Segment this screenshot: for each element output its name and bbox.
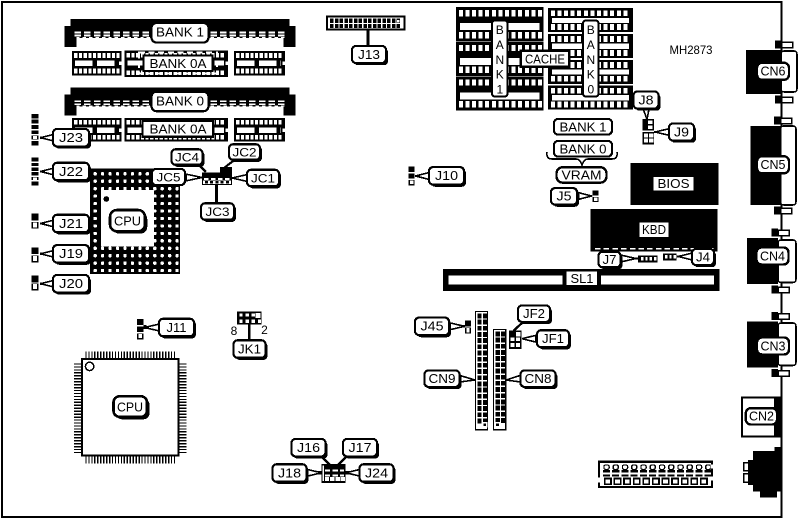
svg-text:N: N <box>586 53 595 67</box>
svg-text:JC5: JC5 <box>157 170 181 184</box>
svg-text:VRAM: VRAM <box>562 169 602 183</box>
svg-text:J23: J23 <box>59 131 83 145</box>
svg-text:J9: J9 <box>674 125 689 139</box>
svg-text:J17: J17 <box>349 441 372 455</box>
svg-text:J13: J13 <box>358 48 380 62</box>
svg-text:K: K <box>496 68 504 82</box>
svg-text:J4: J4 <box>696 250 710 264</box>
svg-text:J19: J19 <box>59 247 83 261</box>
svg-text:J20: J20 <box>59 277 83 291</box>
svg-text:J16: J16 <box>297 441 320 455</box>
svg-text:CPU: CPU <box>117 400 143 415</box>
svg-text:JC1: JC1 <box>251 171 275 185</box>
svg-text:MH2873: MH2873 <box>670 43 713 57</box>
svg-text:1: 1 <box>496 83 503 97</box>
svg-text:N: N <box>495 53 504 67</box>
svg-text:B: B <box>496 23 504 37</box>
svg-text:JF2: JF2 <box>523 307 545 321</box>
svg-text:B: B <box>587 23 595 37</box>
svg-text:J21: J21 <box>59 217 83 231</box>
svg-text:J22: J22 <box>59 165 83 179</box>
svg-text:J7: J7 <box>603 253 617 267</box>
svg-text:SL1: SL1 <box>571 272 594 286</box>
svg-text:JC2: JC2 <box>233 145 257 159</box>
svg-text:CN4: CN4 <box>760 249 785 263</box>
svg-text:CN9: CN9 <box>429 372 456 386</box>
svg-text:J11: J11 <box>167 321 187 335</box>
svg-text:2: 2 <box>261 323 268 337</box>
svg-text:CPU: CPU <box>114 214 141 229</box>
svg-text:CN5: CN5 <box>761 158 786 172</box>
svg-text:0: 0 <box>587 83 594 97</box>
svg-text:JF1: JF1 <box>542 332 564 346</box>
svg-text:BANK 0A: BANK 0A <box>150 122 207 137</box>
svg-text:BANK 0: BANK 0 <box>156 93 204 108</box>
svg-text:CN3: CN3 <box>761 339 786 353</box>
svg-text:BANK 1: BANK 1 <box>156 25 204 40</box>
svg-text:J8: J8 <box>639 93 654 107</box>
svg-text:J10: J10 <box>435 169 458 183</box>
svg-text:J45: J45 <box>421 320 444 334</box>
svg-text:JC3: JC3 <box>206 205 230 219</box>
svg-text:A: A <box>587 38 595 52</box>
svg-text:BIOS: BIOS <box>658 177 690 191</box>
svg-text:8: 8 <box>231 324 238 338</box>
svg-text:J5: J5 <box>557 190 572 204</box>
svg-text:J24: J24 <box>365 466 388 480</box>
svg-text:K: K <box>587 68 595 82</box>
svg-text:J18: J18 <box>278 466 301 480</box>
svg-text:CN6: CN6 <box>761 65 786 79</box>
svg-text:JC4: JC4 <box>175 150 199 164</box>
svg-text:BANK 0: BANK 0 <box>560 142 607 156</box>
svg-text:BANK 1: BANK 1 <box>560 120 607 134</box>
svg-text:CACHE: CACHE <box>525 53 565 67</box>
svg-text:KBD: KBD <box>642 223 666 237</box>
svg-text:A: A <box>496 38 504 52</box>
svg-text:CN2: CN2 <box>749 410 774 424</box>
svg-text:JK1: JK1 <box>238 342 261 356</box>
svg-text:BANK 0A: BANK 0A <box>150 56 207 71</box>
svg-text:CN8: CN8 <box>525 372 552 386</box>
